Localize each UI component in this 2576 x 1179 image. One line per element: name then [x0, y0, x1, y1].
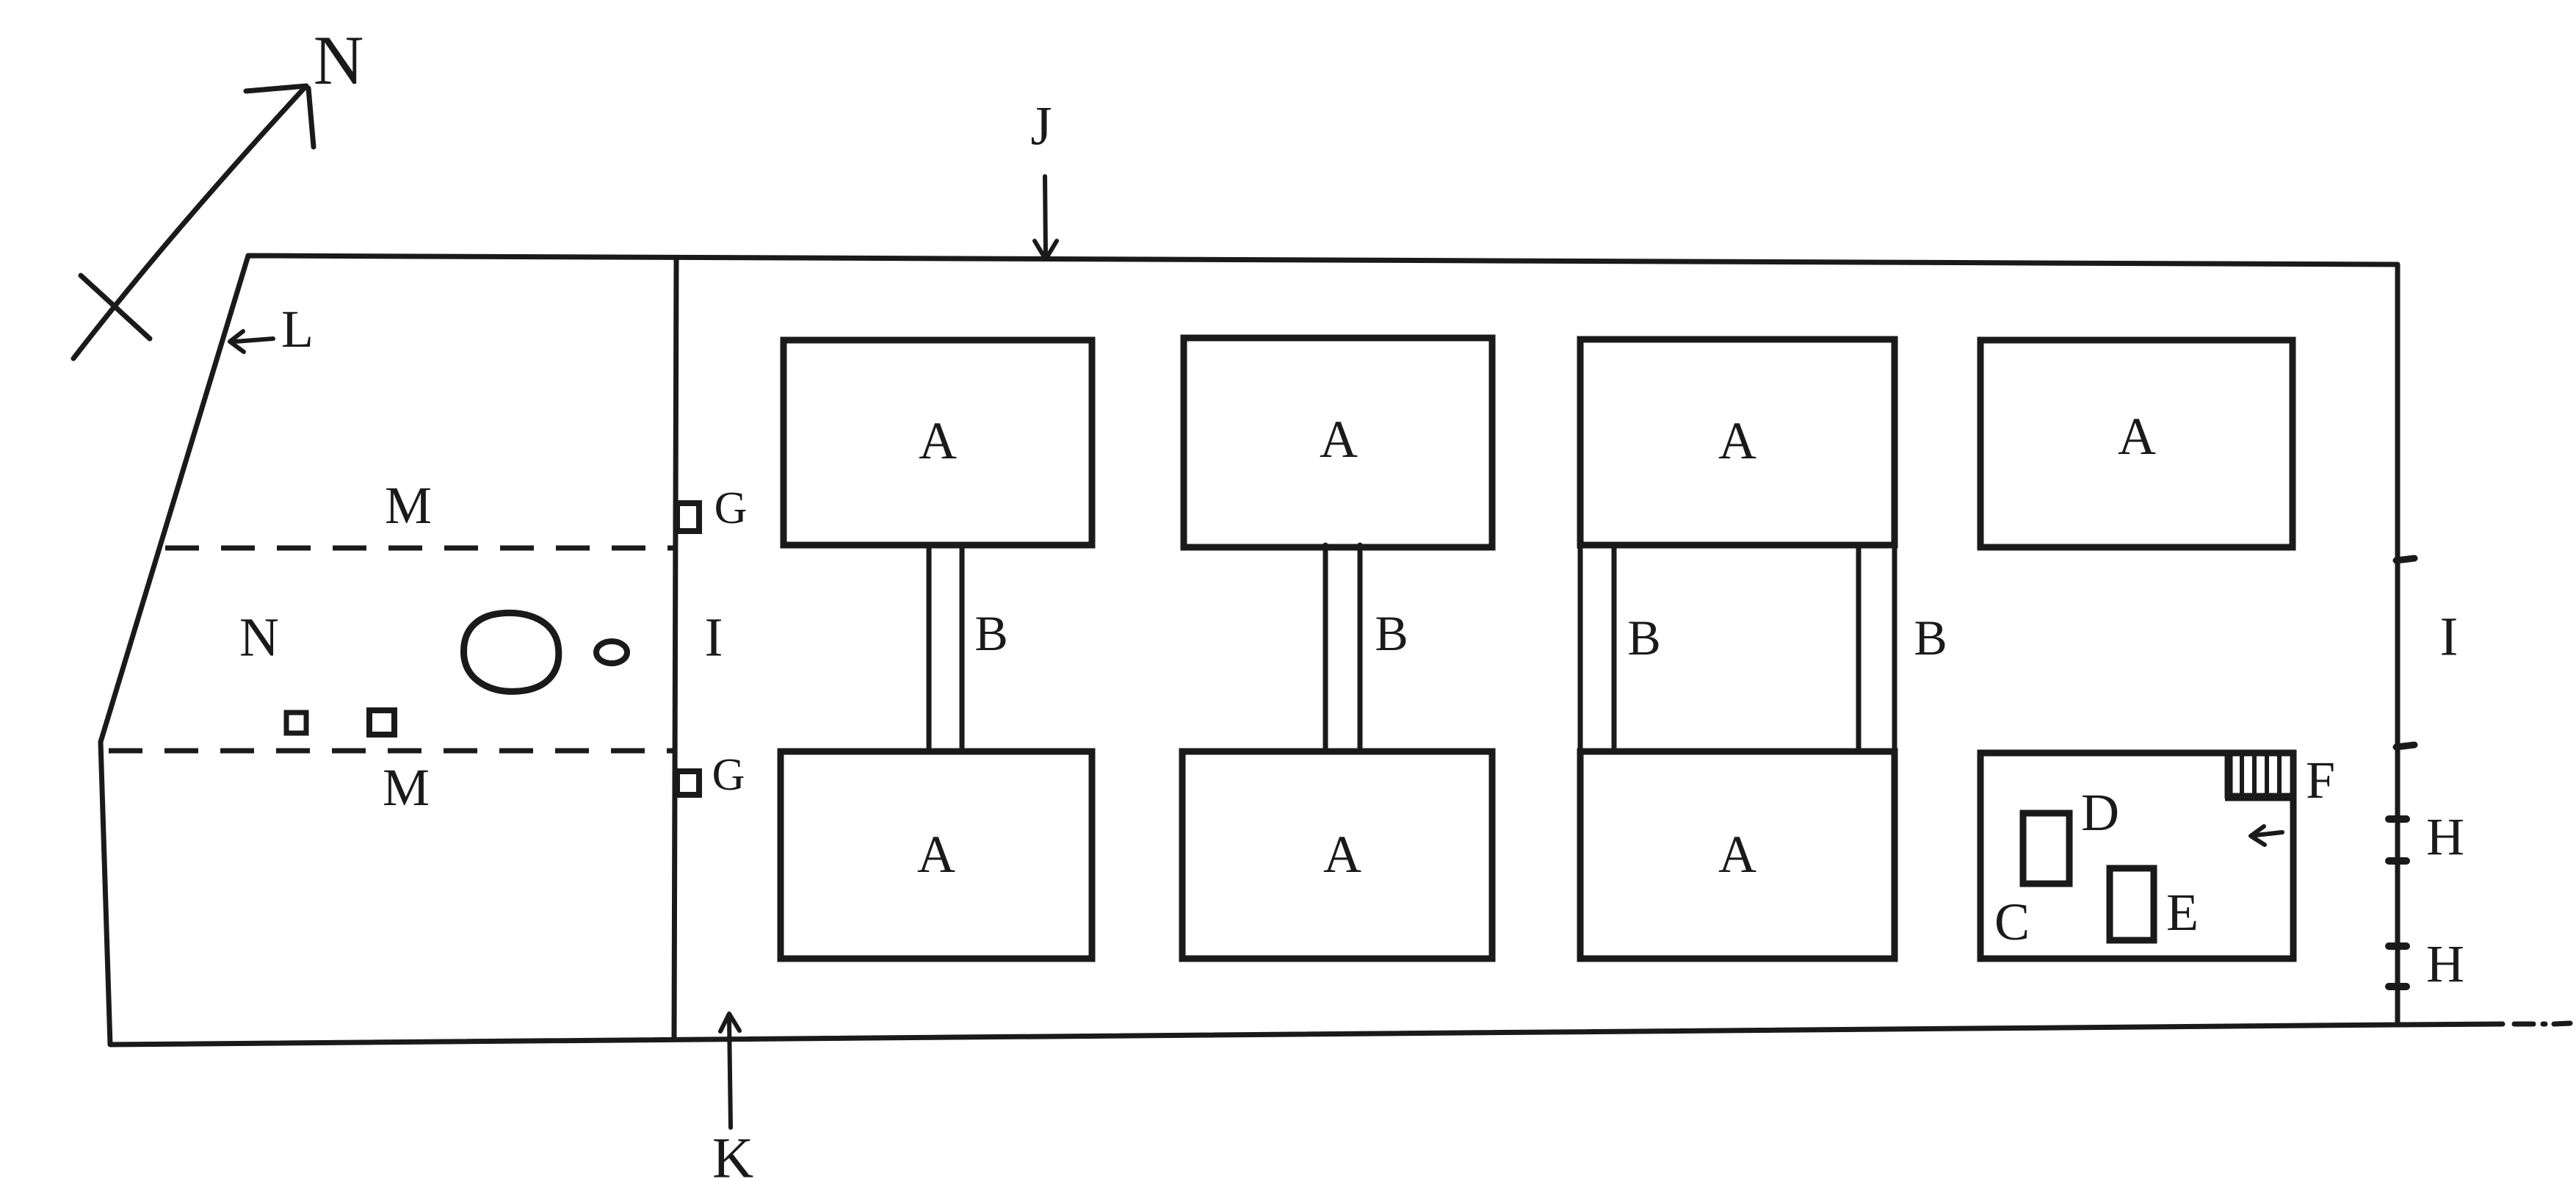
callout-l-label: L	[281, 300, 314, 358]
callout-k-label: K	[712, 1126, 753, 1179]
feature-e-label: E	[2166, 883, 2199, 942]
compass-north-label: N	[314, 21, 364, 99]
callout-j-label: J	[1030, 96, 1052, 157]
callout-l: L	[230, 300, 314, 358]
north-compass: N	[73, 21, 363, 358]
hall-bottom-3-label: A	[1718, 825, 1756, 884]
bottom-boundary-dash-dot	[2514, 1023, 2570, 1024]
entrance-arrow-shaft	[2256, 832, 2282, 835]
hall-bottom-1-label: A	[917, 825, 955, 884]
parcel-area-label-n: N	[239, 607, 279, 668]
callout-j: J	[1030, 96, 1057, 260]
feature-d-rect	[2023, 813, 2069, 884]
corridor-2-walls	[1325, 545, 1360, 751]
parcel-small-square-1	[286, 713, 306, 733]
east-edge-upper-label-h: H	[2426, 807, 2464, 866]
parcel-small-pit	[596, 641, 627, 663]
hall-top-1-label: A	[919, 411, 957, 470]
corridor-4-label-b: B	[1914, 610, 1947, 666]
parcel-small-square-2	[369, 710, 394, 735]
hall-top-3-label: A	[1718, 411, 1756, 470]
corridor-1-walls	[929, 545, 962, 751]
left-parcel: M M N	[109, 476, 676, 817]
feature-d-label: D	[2081, 783, 2119, 842]
middle-band-east-label-i: I	[2440, 607, 2459, 668]
corridor-1-label-b: B	[974, 605, 1007, 661]
parcel-pit-blob	[464, 613, 559, 691]
halls-top-row: A A A A	[784, 338, 2293, 547]
upper-gate-square	[677, 503, 699, 531]
north-arrow-cross-stroke	[81, 275, 150, 339]
annex-room: F D E C	[1980, 751, 2335, 959]
middle-band-west-label-i: I	[705, 607, 723, 668]
hall-top-2-label: A	[1320, 410, 1358, 469]
upper-gate-label-g: G	[714, 483, 748, 533]
east-edge-lower-label-h: H	[2426, 934, 2464, 993]
corridor-3-label-b: B	[1627, 610, 1660, 666]
hall-top-4-label: A	[2118, 407, 2156, 466]
corridor-2-label-b: B	[1375, 605, 1408, 661]
callout-k-arrow-shaft	[729, 1018, 731, 1128]
feature-e-rect	[2110, 868, 2154, 940]
divider-wall	[674, 258, 676, 1039]
corridors: B B B B	[929, 545, 1947, 751]
lower-dashed-label-m: M	[383, 758, 430, 817]
upper-dashed-label-m: M	[385, 476, 432, 535]
lower-gate-label-g: G	[712, 750, 745, 800]
north-arrow-head-left-wing	[246, 86, 306, 91]
lower-gate-square	[677, 771, 699, 795]
room-area-label-c: C	[1994, 893, 2030, 951]
stairs-label-f: F	[2306, 751, 2335, 810]
north-arrow-shaft	[73, 86, 306, 358]
halls-bottom-row: A A A	[781, 751, 1895, 959]
site-plan-page: N M M N G G I I A A A A	[0, 0, 2576, 1179]
site-plan-figure: N M M N G G I I A A A A	[0, 0, 2576, 1179]
callout-j-arrow-shaft	[1045, 176, 1046, 256]
bottom-boundary-extension	[2398, 1024, 2503, 1025]
hall-bottom-2-label: A	[1323, 825, 1361, 884]
callout-l-arrow-shaft	[235, 339, 273, 342]
